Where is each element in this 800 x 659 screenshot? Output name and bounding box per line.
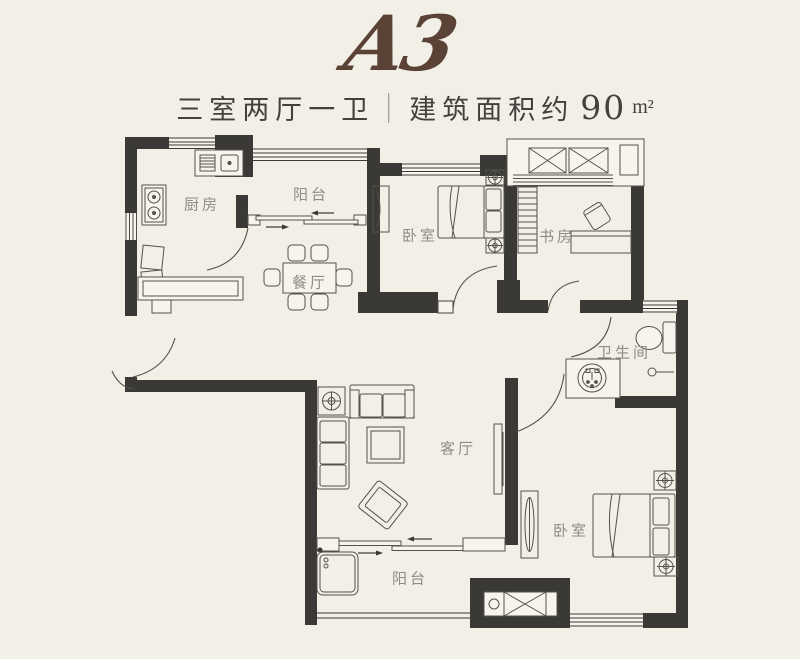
kitchen-door-arc <box>207 228 248 270</box>
coffee-table <box>367 427 404 463</box>
floor-plan: 厨房 阳台 餐厅 卧室 书房 卫生间 客厅 卧室 阳台 <box>0 0 800 659</box>
shaft-top <box>507 139 644 186</box>
study-door-arc <box>548 281 579 311</box>
room-label-living: 客厅 <box>440 438 476 459</box>
floor-drain-icon <box>648 368 674 376</box>
lamp-icon <box>656 472 674 490</box>
lamp-icon <box>487 238 503 254</box>
bookshelf <box>518 187 537 253</box>
room-label-bathroom: 卫生间 <box>597 342 651 363</box>
bed <box>438 186 504 238</box>
bathroom-window <box>643 300 677 313</box>
shaft-x-icon <box>504 592 546 616</box>
nightstand <box>654 471 676 490</box>
room-label-balcony-top: 阳台 <box>293 184 329 205</box>
room-label-dining: 餐厅 <box>292 272 328 293</box>
dining-chair <box>336 269 352 286</box>
plant-icon <box>318 387 345 415</box>
door-arcs <box>112 228 611 432</box>
bedroom-right-furniture <box>521 471 678 576</box>
dining-chair <box>311 294 328 310</box>
room-label-bedroom-top: 卧室 <box>402 225 438 246</box>
bedroom-top-furniture <box>373 170 504 254</box>
bedroom-right-door-arc <box>516 374 564 432</box>
nightstand <box>654 557 678 576</box>
shaft-bottom <box>484 592 557 616</box>
wardrobe <box>521 491 538 558</box>
dining-chair <box>264 269 280 286</box>
entry-console <box>138 277 243 313</box>
floor-plan-page: A3 三室两厅一卫 建筑面积约 90 m² <box>0 0 800 659</box>
bedroom-top-door-arc <box>453 266 497 309</box>
shaft-x-icon <box>529 148 566 173</box>
armchair <box>358 480 409 530</box>
door-jamb <box>438 301 453 313</box>
floor-plan-svg <box>0 0 800 659</box>
bedroom-top-window <box>402 163 480 176</box>
dining-chair <box>311 245 328 261</box>
nightstand <box>486 238 504 254</box>
shaft-x-icon <box>569 148 608 173</box>
sliding-door-top <box>248 211 366 230</box>
sliding-door-bottom <box>317 537 505 556</box>
desk-chair <box>583 201 612 230</box>
desk <box>571 231 631 253</box>
entry-door-arc <box>133 338 175 377</box>
bedroom-right-window <box>570 613 643 627</box>
room-label-kitchen: 厨房 <box>184 194 220 215</box>
bed <box>593 494 675 557</box>
room-label-bedroom-right: 卧室 <box>553 520 589 541</box>
room-label-balcony-bottom: 阳台 <box>392 568 428 589</box>
wash-basin-icon <box>566 359 620 398</box>
room-label-study: 书房 <box>539 226 575 247</box>
tv-icon <box>494 424 503 494</box>
kitchen-furniture <box>138 150 243 313</box>
stove-icon <box>142 185 166 225</box>
lamp-icon <box>657 558 675 576</box>
kitchen-top-window <box>169 137 215 149</box>
washing-machine-icon <box>317 548 358 596</box>
dining-chair <box>288 245 305 261</box>
kitchen-left-window <box>125 213 137 240</box>
balcony-top-window <box>253 148 367 161</box>
dining-chair <box>288 294 305 310</box>
balcony-bottom-rail <box>317 613 470 618</box>
